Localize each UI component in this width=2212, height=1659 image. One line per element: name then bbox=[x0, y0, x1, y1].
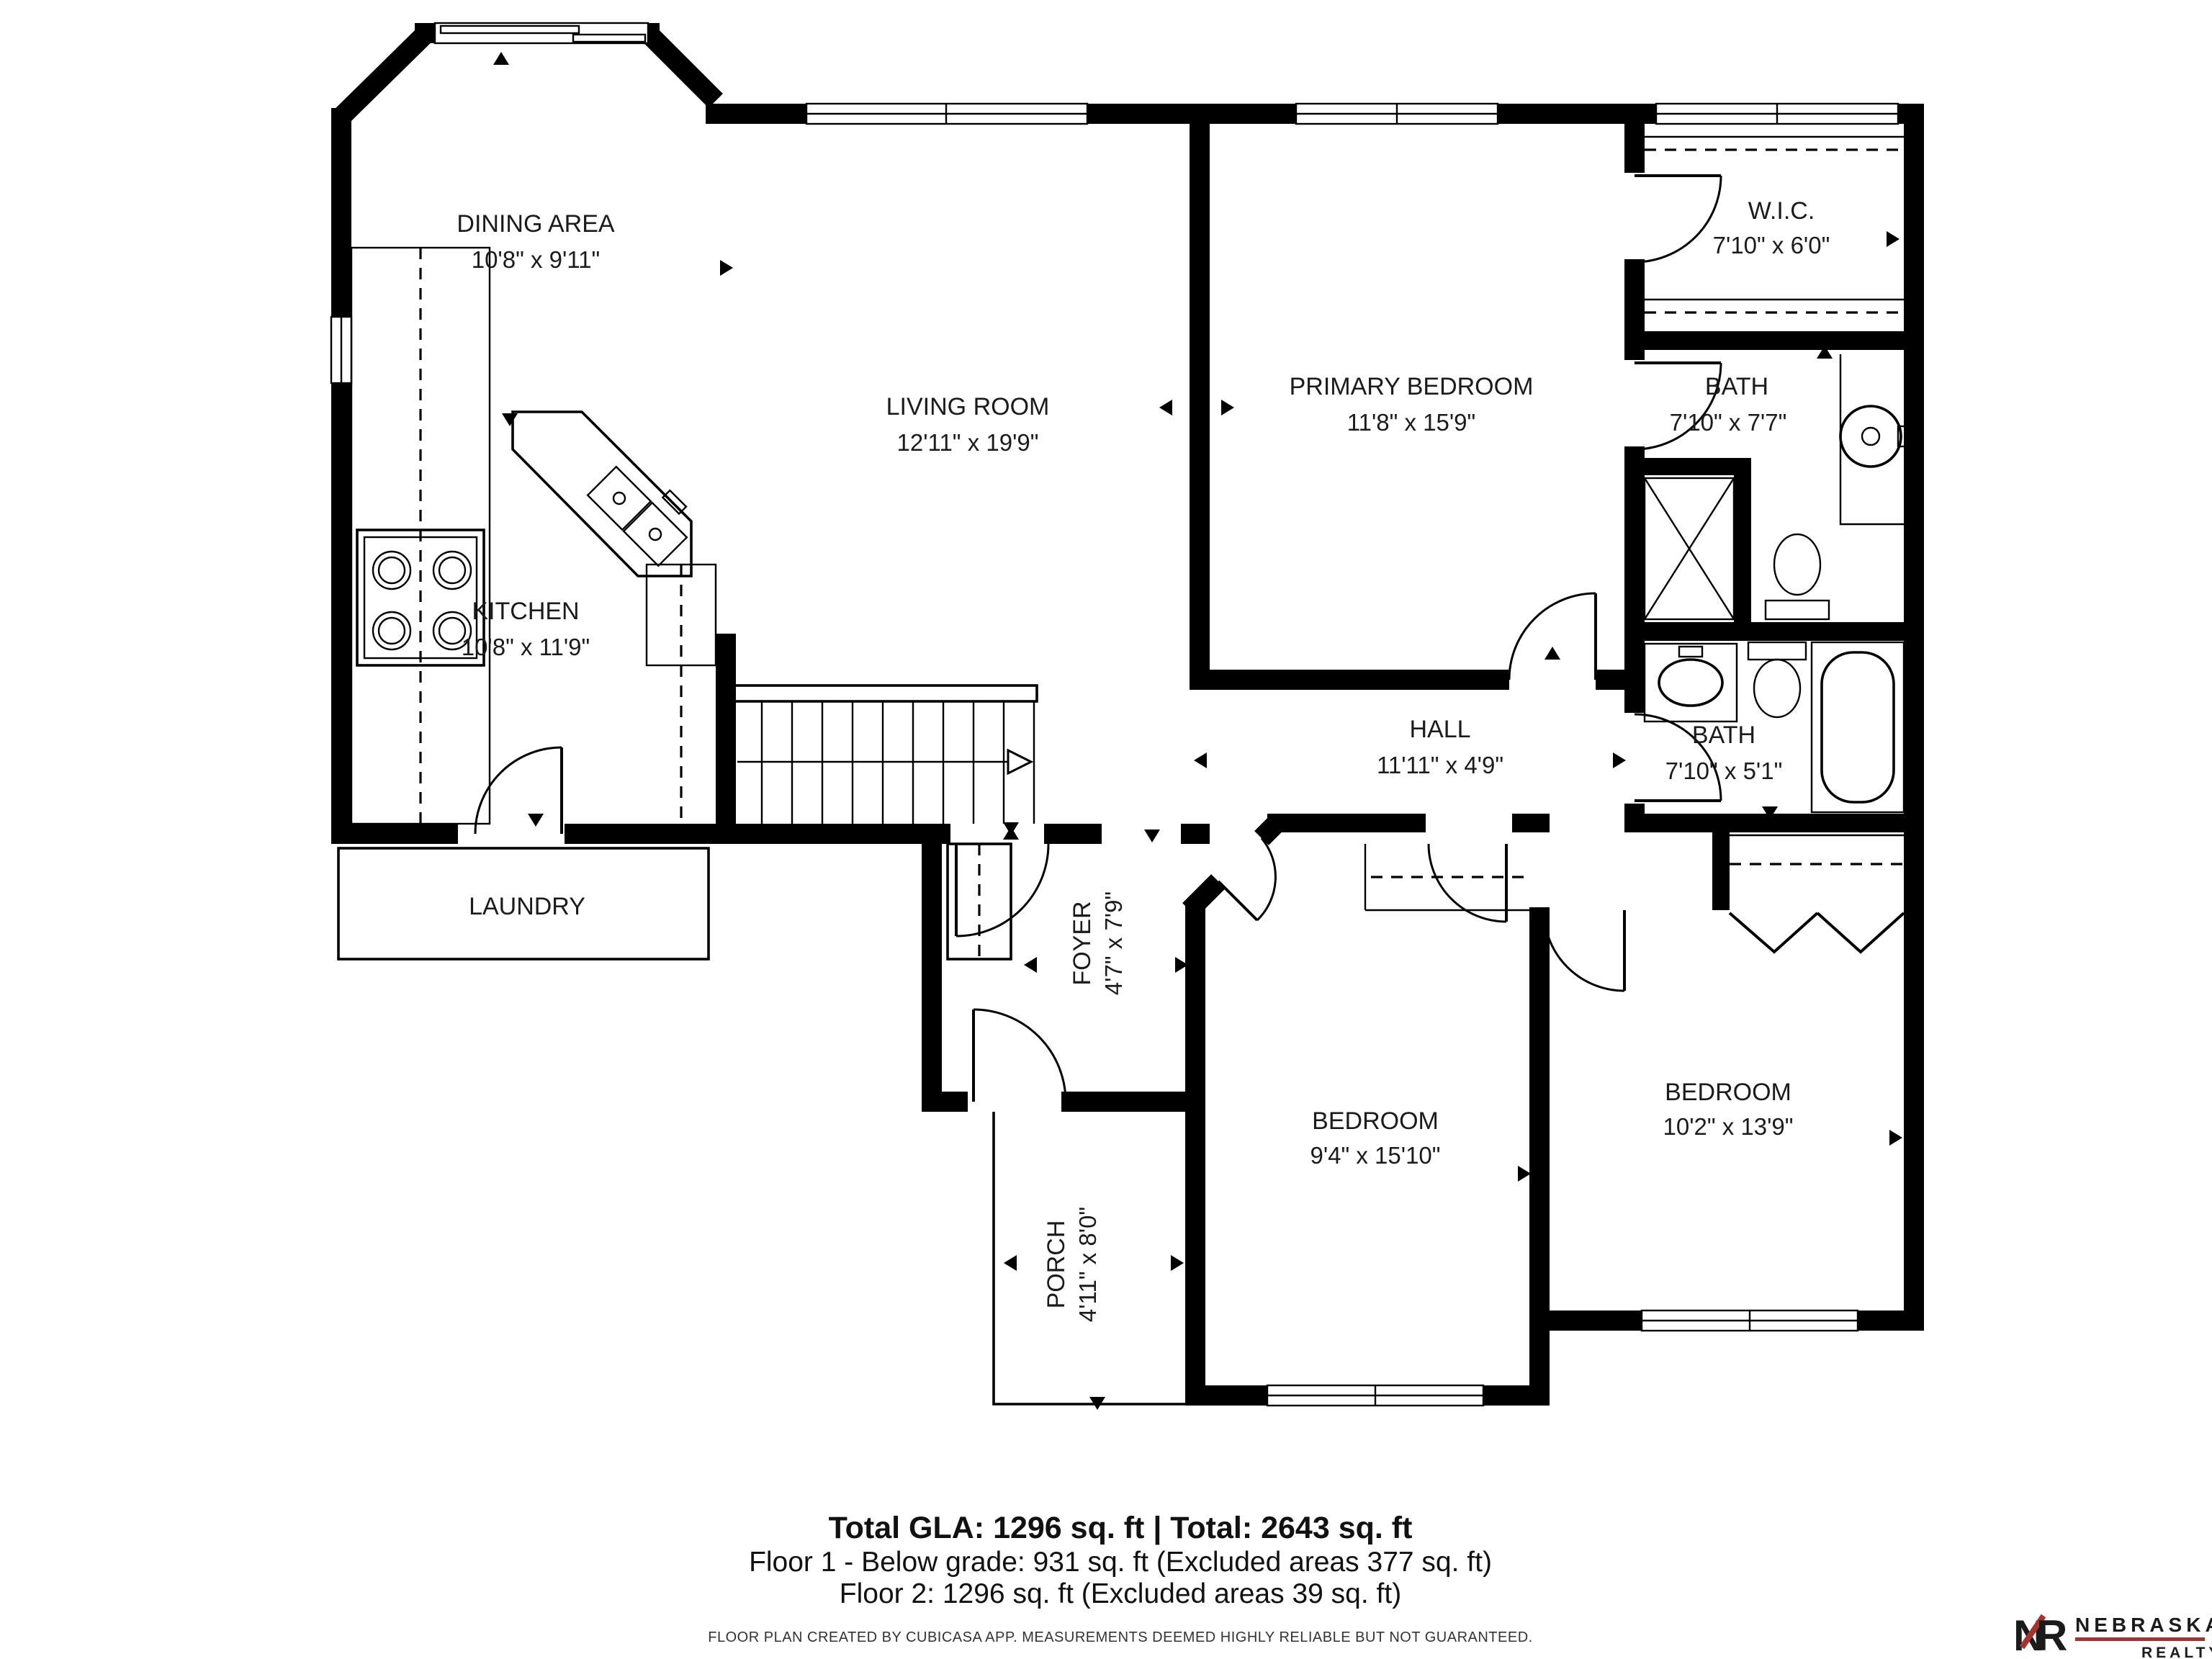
upper-bath-vanity bbox=[1840, 354, 1904, 524]
upper-bath-sink bbox=[1840, 406, 1901, 467]
room-dims-bedroom-mid: 9'4" x 15'10" bbox=[1310, 1142, 1441, 1169]
arrow-icon bbox=[502, 413, 518, 426]
thin-structures bbox=[338, 844, 1185, 1404]
room-label-porch: PORCH bbox=[1043, 1220, 1070, 1309]
lower-toilet-tank bbox=[1748, 642, 1806, 660]
room-dims-bedroom-right: 10'2" x 13'9" bbox=[1663, 1113, 1794, 1140]
room-dims-dining: 10'8" x 9'11" bbox=[472, 246, 601, 273]
lower-bath-faucet bbox=[1679, 647, 1702, 657]
room-label-bath-lower: BATH bbox=[1692, 721, 1755, 749]
arrow-icon bbox=[1887, 231, 1899, 247]
island-sink-basin-1 bbox=[588, 467, 651, 530]
kitchen-island bbox=[513, 412, 691, 576]
room-label-primary-bedroom: PRIMARY BEDROOM bbox=[1290, 373, 1534, 400]
room-dims-bath-lower: 7'10" x 5'1" bbox=[1665, 757, 1783, 784]
right-bedroom-window bbox=[1642, 1310, 1858, 1331]
room-label-porch-group: PORCH 4'11" x 8'0" bbox=[1043, 1207, 1101, 1322]
room-dims-bath-upper: 7'10" x 7'7" bbox=[1670, 409, 1787, 436]
dining-side-window bbox=[331, 317, 351, 383]
arrow-icon bbox=[1194, 752, 1207, 768]
arrow-icon bbox=[1003, 827, 1019, 840]
floor1-line: Floor 1 - Below grade: 931 sq. ft (Exclu… bbox=[749, 1547, 1492, 1578]
room-dims-kitchen: 10'8" x 11'9" bbox=[462, 634, 590, 660]
bathtub-inner bbox=[1822, 652, 1894, 802]
room-dims-porch: 4'11" x 8'0" bbox=[1074, 1207, 1101, 1322]
arrow-icon bbox=[1518, 1166, 1531, 1182]
upper-toilet-bowl bbox=[1774, 534, 1820, 595]
room-dims-primary-bedroom: 11'8" x 15'9" bbox=[1347, 409, 1476, 436]
arrow-icon bbox=[1144, 829, 1160, 842]
floor-plan: DINING AREA 10'8" x 9'11" LIVING ROOM 12… bbox=[0, 0, 2212, 1659]
kitchen-fixtures bbox=[351, 248, 716, 824]
mid-bedroom-window bbox=[1267, 1385, 1483, 1406]
room-label-laundry: LAUNDRY bbox=[469, 893, 585, 920]
arrow-icon bbox=[1889, 1130, 1902, 1146]
logo-name: NEBRASKA bbox=[2075, 1614, 2212, 1636]
wic-door bbox=[1635, 176, 1721, 262]
room-label-living: LIVING ROOM bbox=[886, 393, 1050, 421]
room-dims-hall: 11'11" x 4'9" bbox=[1377, 752, 1503, 778]
room-dims-wic: 7'10" x 6'0" bbox=[1713, 232, 1830, 258]
primary-bedroom-window bbox=[1296, 104, 1498, 124]
arrow-icon bbox=[1024, 957, 1037, 973]
floor2-line: Floor 2: 1296 sq. ft (Excluded areas 39 … bbox=[840, 1578, 1401, 1609]
arrow-icon bbox=[1004, 1255, 1017, 1271]
island-faucet bbox=[662, 490, 686, 514]
disclaimer-text: FLOOR PLAN CREATED BY CUBICASA APP. MEAS… bbox=[708, 1629, 1532, 1645]
room-label-bedroom-right: BEDROOM bbox=[1665, 1079, 1791, 1106]
mid-bedroom-door bbox=[1218, 838, 1275, 920]
arrow-icon bbox=[493, 52, 509, 65]
stair-rail bbox=[732, 685, 1037, 701]
right-bedroom-door bbox=[1544, 910, 1624, 991]
logo-monogram-r: R bbox=[2036, 1611, 2067, 1659]
total-gla-line: Total GLA: 1296 sq. ft | Total: 2643 sq.… bbox=[829, 1511, 1413, 1545]
room-label-hall: HALL bbox=[1409, 716, 1470, 743]
room-dims-living: 12'11" x 19'9" bbox=[897, 429, 1039, 456]
arrow-icon bbox=[1545, 647, 1560, 660]
bay-window bbox=[435, 23, 648, 43]
arrow-icon bbox=[1171, 1255, 1184, 1271]
lower-bath-sink bbox=[1659, 660, 1722, 706]
arrow-icon bbox=[1221, 400, 1234, 415]
logo-subname: REALTY bbox=[2141, 1645, 2212, 1659]
living-top-window bbox=[806, 104, 1087, 124]
stairs bbox=[732, 685, 1037, 824]
area-summary: Total GLA: 1296 sq. ft | Total: 2643 sq.… bbox=[708, 1511, 1532, 1645]
room-label-foyer: FOYER bbox=[1069, 901, 1096, 985]
wic-window bbox=[1656, 104, 1898, 124]
room-label-kitchen: KITCHEN bbox=[472, 598, 579, 625]
stair-direction-arrow-icon bbox=[1008, 750, 1031, 773]
primary-bedroom-door bbox=[1509, 593, 1596, 680]
room-label-dining: DINING AREA bbox=[457, 210, 614, 238]
lower-toilet-bowl bbox=[1754, 660, 1800, 717]
brand-logo: N R NEBRASKA REALTY bbox=[2013, 1611, 2212, 1659]
kitchen-laundry-door bbox=[475, 747, 562, 834]
arrow-icon bbox=[528, 814, 544, 827]
arrow-icon bbox=[1613, 752, 1626, 768]
room-dims-foyer: 4'7" x 7'9" bbox=[1100, 891, 1127, 995]
arrow-icon bbox=[720, 260, 733, 276]
front-door bbox=[974, 1010, 1066, 1102]
room-label-foyer-group: FOYER 4'7" x 7'9" bbox=[1069, 891, 1127, 995]
room-label-bath-upper: BATH bbox=[1705, 373, 1768, 400]
bifold-doors bbox=[1730, 913, 1904, 952]
upper-toilet-tank bbox=[1766, 601, 1829, 619]
room-label-bedroom-mid: BEDROOM bbox=[1312, 1107, 1439, 1135]
room-label-wic: W.I.C. bbox=[1748, 197, 1815, 225]
arrow-icon bbox=[1159, 400, 1172, 415]
logo-underline bbox=[2075, 1637, 2205, 1641]
foyer-stairs-door bbox=[956, 844, 1048, 936]
floor-plan-page: DINING AREA 10'8" x 9'11" LIVING ROOM 12… bbox=[0, 0, 2212, 1659]
